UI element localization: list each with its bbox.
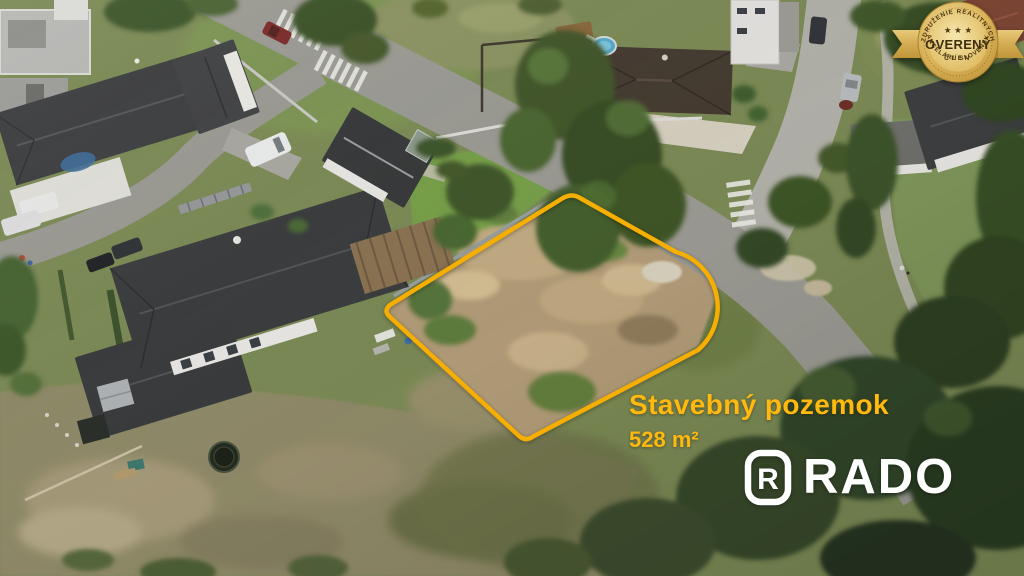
rado-icon-letter: R <box>757 463 779 496</box>
real-estate-listing-photo: Stavebný pozemok 528 m² R RADO <box>0 0 1024 576</box>
badge-seal: ZDRUŽENIE REALITNÝCH KANCELÁRIÍ SLOVENSK… <box>874 0 998 82</box>
badge-main-text: OVERENÝ <box>925 37 991 52</box>
rado-logo-icon: R <box>744 449 792 506</box>
plot-label: Stavebný pozemok 528 m² <box>629 390 889 453</box>
rado-logo: R RADO <box>744 449 955 506</box>
plot-title: Stavebný pozemok <box>629 390 889 419</box>
badge-sub-text: ČLEN <box>944 53 972 62</box>
rado-logo-text: RADO <box>803 449 955 506</box>
badge-stars: ★ ★ ★ <box>944 26 973 36</box>
verified-badge: ZDRUŽENIE REALITNÝCH KANCELÁRIÍ SLOVENSK… <box>874 0 1024 114</box>
